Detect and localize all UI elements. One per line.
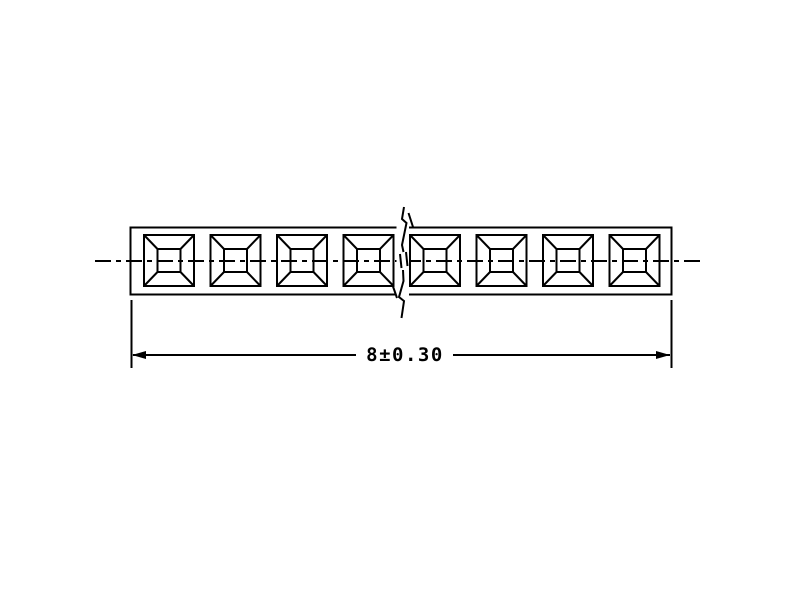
technical-drawing: 8±0.30 xyxy=(0,0,800,600)
arrowhead-left-icon xyxy=(132,351,146,359)
arrowhead-right-icon xyxy=(656,351,670,359)
break-tick-top xyxy=(409,213,414,227)
break-tick-bottom xyxy=(393,285,398,298)
dimension-label: 8±0.30 xyxy=(366,344,444,366)
drawing-canvas: 8±0.30 xyxy=(0,0,800,600)
